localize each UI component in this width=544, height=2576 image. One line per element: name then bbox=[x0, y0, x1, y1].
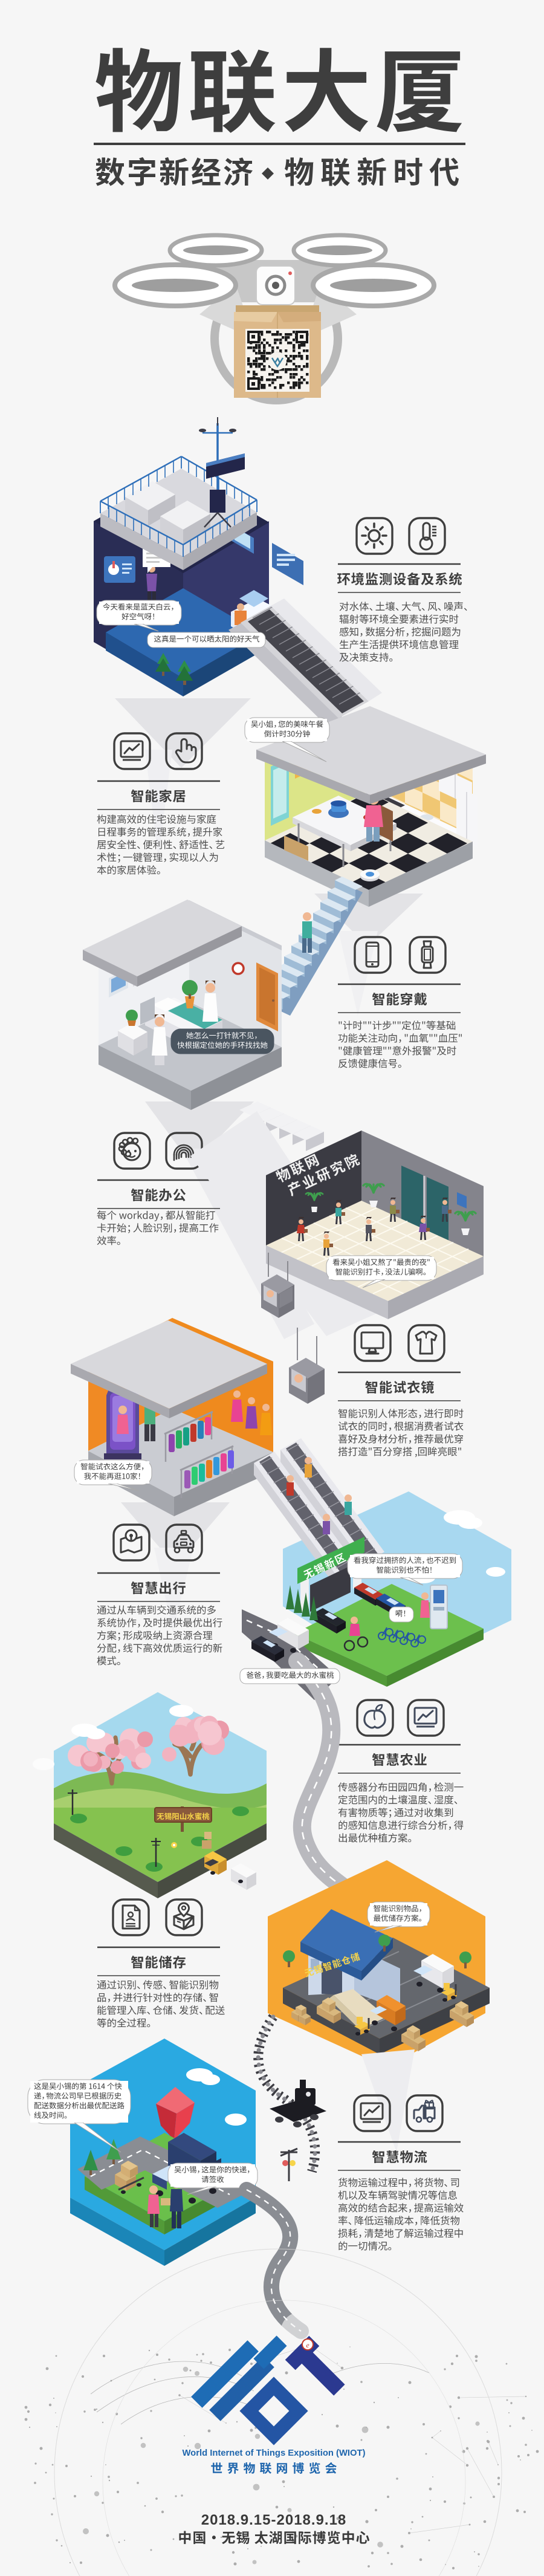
svg-text:e: e bbox=[306, 2341, 309, 2349]
svg-text:2018.9.15-2018.9.18: 2018.9.15-2018.9.18 bbox=[201, 2512, 347, 2528]
svg-text:World Internet of Things Expos: World Internet of Things Exposition (WIO… bbox=[182, 2448, 365, 2458]
